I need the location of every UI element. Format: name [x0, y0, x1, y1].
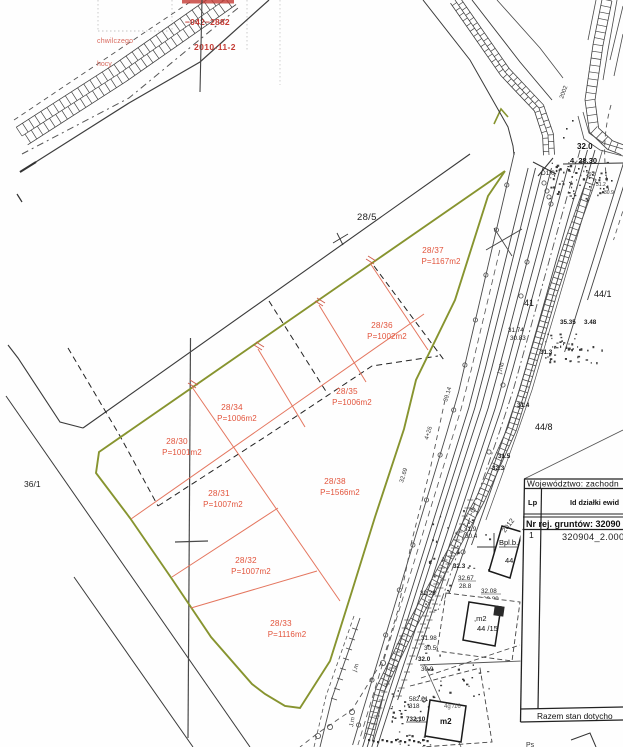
svg-text:28/5: 28/5	[357, 212, 377, 223]
svg-text:44/: 44/	[505, 556, 516, 565]
svg-text:30.83: 30.83	[510, 335, 526, 342]
svg-text:44 /15: 44 /15	[477, 624, 498, 633]
svg-text:Bpl.b.: Bpl.b.	[499, 538, 518, 547]
svg-text:32.3: 32.3	[492, 465, 505, 472]
svg-text:P=1001m2: P=1001m2	[162, 448, 202, 457]
svg-text:Ps: Ps	[526, 742, 535, 747]
svg-text:31.4: 31.4	[517, 402, 530, 409]
svg-text:P=1566m2: P=1566m2	[320, 488, 360, 497]
svg-text:582.01: 582.01	[409, 696, 429, 703]
svg-text:28/34: 28/34	[221, 402, 243, 412]
svg-text:320904_2.000: 320904_2.000	[562, 532, 623, 542]
svg-text:28/37: 28/37	[422, 245, 444, 255]
svg-text:32.28: 32.28	[420, 590, 436, 597]
svg-text:36/1: 36/1	[24, 479, 41, 489]
svg-text:31.9: 31.9	[464, 526, 477, 533]
svg-text:28/35: 28/35	[336, 386, 358, 396]
svg-text:−042−2882: −042−2882	[185, 17, 230, 27]
svg-text:28/30: 28/30	[166, 436, 188, 446]
svg-text:P=1006m2: P=1006m2	[217, 414, 257, 423]
svg-text:31.5: 31.5	[498, 453, 511, 460]
svg-text:Id działki ewid: Id działki ewid	[570, 498, 619, 507]
svg-text:31.3: 31.3	[540, 349, 553, 356]
svg-text:29.5: 29.5	[586, 172, 596, 178]
svg-text:31.2: 31.2	[596, 182, 606, 188]
svg-text:P=1002m2: P=1002m2	[367, 332, 407, 341]
svg-text:31.98: 31.98	[421, 635, 437, 642]
svg-text:2010-11-2: 2010-11-2	[194, 42, 236, 52]
svg-text:32.0: 32.0	[418, 656, 431, 663]
svg-text:35.35: 35.35	[560, 319, 576, 326]
svg-text:,m2: ,m2	[474, 614, 487, 623]
svg-text:31.74: 31.74	[508, 327, 524, 334]
svg-text:30.9: 30.9	[604, 190, 614, 196]
svg-text:P=1007m2: P=1007m2	[231, 567, 271, 576]
svg-text:Lp: Lp	[528, 498, 538, 507]
svg-text:hocy: hocy	[97, 61, 112, 68]
svg-text:30.4: 30.4	[465, 533, 478, 540]
svg-text:28/38: 28/38	[324, 476, 346, 486]
svg-text:1: 1	[529, 530, 534, 540]
svg-text:P=1116m2: P=1116m2	[268, 630, 307, 639]
svg-text:P=1006m2: P=1006m2	[332, 398, 372, 407]
svg-text:Województwo: zachodn: Województwo: zachodn	[527, 479, 619, 489]
svg-text:28/33: 28/33	[270, 618, 292, 628]
svg-text:3.48: 3.48	[584, 319, 597, 326]
svg-text:28/32: 28/32	[235, 555, 257, 565]
svg-text:Razem stan dotycho: Razem stan dotycho	[537, 711, 613, 721]
svg-text:44/1: 44/1	[594, 289, 612, 299]
svg-text:D1.0: D1.0	[541, 170, 555, 177]
svg-text:28/31: 28/31	[208, 488, 230, 498]
svg-text:318: 318	[409, 703, 420, 710]
svg-text:28/36: 28/36	[371, 320, 393, 330]
svg-text:32.3: 32.3	[453, 563, 466, 570]
svg-text:44/8: 44/8	[535, 422, 553, 432]
svg-text:4, 28.30: 4, 28.30	[570, 156, 597, 165]
svg-text:41: 41	[524, 298, 534, 308]
svg-text:m2: m2	[440, 717, 452, 726]
svg-text:4g /16: 4g /16	[444, 704, 461, 710]
svg-text:P=1167m2: P=1167m2	[421, 257, 461, 266]
svg-text:chwilczego: chwilczego	[97, 38, 133, 45]
svg-text:Nr rej. gruntów: 32090: Nr rej. gruntów: 32090	[526, 519, 621, 529]
svg-text:32.0: 32.0	[577, 142, 593, 151]
svg-text:P=1007m2: P=1007m2	[203, 500, 243, 509]
svg-text:28.8: 28.8	[459, 583, 472, 590]
